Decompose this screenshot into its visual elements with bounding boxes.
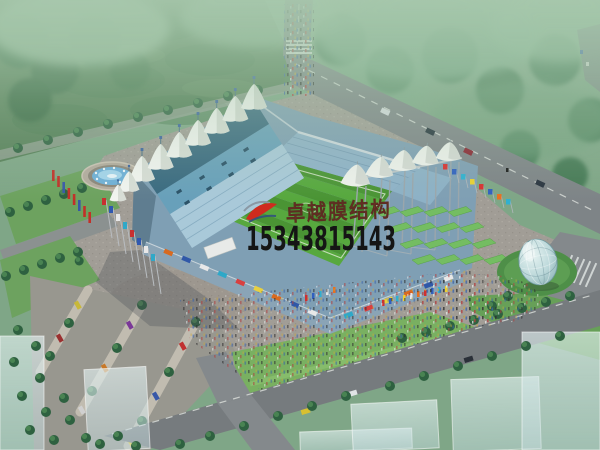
stadium-rendering: 卓越膜结构 15343815143 — [0, 0, 600, 450]
watermark-phone-number: 15343815143 — [246, 219, 396, 258]
watermark: 卓越膜结构 15343815143 — [244, 196, 396, 258]
haze-overlay — [0, 0, 600, 200]
